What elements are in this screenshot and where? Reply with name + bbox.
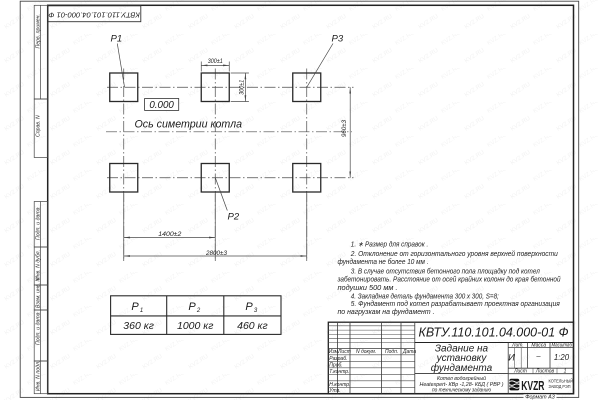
svg-text:Ось симетрии котла: Ось симетрии котла: [135, 119, 243, 131]
svg-text:N докум.: N докум.: [356, 349, 376, 355]
svg-text:2800±3: 2800±3: [205, 250, 227, 257]
svg-text:3. В случае отсутствия бетонн: 3. В случае отсутствия бетонного пола пл…: [351, 267, 540, 275]
svg-text:Лит.: Лит.: [511, 343, 524, 349]
svg-text:Подп. и дата: Подп. и дата: [35, 312, 41, 345]
svg-text:Подп. и дата: Подп. и дата: [35, 207, 41, 240]
svg-text:Проб.: Проб.: [329, 362, 342, 368]
svg-text:1000 кг: 1000 кг: [177, 320, 213, 332]
svg-text:2. Отклонение от горизонтальн: 2. Отклонение от горизонтального уровня …: [350, 250, 558, 258]
svg-text:0.000: 0.000: [149, 100, 174, 111]
svg-text:P2: P2: [228, 212, 240, 223]
svg-text:фундамента не более 10 мм .: фундамента не более 10 мм .: [338, 258, 429, 266]
svg-text:по техническому заданию: по техническому заданию: [432, 387, 491, 393]
svg-text:подушки 500 мм .: подушки 500 мм .: [338, 284, 398, 292]
svg-text:300±1: 300±1: [239, 79, 246, 94]
svg-text:Лист: Лист: [513, 369, 527, 375]
svg-text:Подп.: Подп.: [385, 349, 398, 355]
svg-text:460 кг: 460 кг: [237, 320, 268, 332]
svg-text:Инв. N подл.: Инв. N подл.: [35, 361, 41, 391]
svg-text:Листов: Листов: [535, 369, 555, 375]
svg-text:Формат А3: Формат А3: [525, 395, 555, 400]
svg-text:KVZR: KVZR: [521, 378, 544, 393]
svg-text:по нагрузкам на фундамент .: по нагрузкам на фундамент .: [338, 308, 435, 316]
svg-text:Справ. N: Справ. N: [35, 115, 41, 137]
svg-text:КВТУ.110.101.04.000-01 Ф: КВТУ.110.101.04.000-01 Ф: [49, 10, 140, 19]
svg-text:P3: P3: [332, 34, 344, 45]
svg-text:Утв.: Утв.: [329, 388, 340, 394]
svg-text:Н.контр.: Н.контр.: [329, 382, 350, 388]
svg-text:Перв. примен.: Перв. примен.: [35, 14, 41, 48]
svg-text:забетонировать. Расстояние от: забетонировать. Расстояние от осей крайн…: [337, 276, 561, 284]
svg-text:Масштаб: Масштаб: [551, 343, 572, 349]
svg-text:Взам. инв. N: Взам. инв. N: [35, 278, 41, 308]
svg-text:Дата: Дата: [402, 349, 416, 355]
svg-text:Разраб.: Разраб.: [329, 356, 347, 362]
svg-text:–: –: [535, 351, 541, 360]
svg-text:1:20: 1:20: [554, 353, 570, 362]
svg-text:P: P: [131, 301, 139, 313]
svg-text:Лист: Лист: [337, 349, 351, 355]
svg-text:И: И: [508, 352, 515, 362]
svg-text:ЗАВОД РЭП: ЗАВОД РЭП: [549, 384, 571, 390]
svg-text:360 кг: 360 кг: [123, 320, 154, 332]
svg-text:P: P: [188, 301, 196, 313]
svg-text:Инв. N дубл.: Инв. N дубл.: [35, 250, 41, 280]
svg-text:1. ∗ Размер для справок .: 1. ∗ Размер для справок .: [351, 241, 429, 249]
svg-text:КВТУ.110.101.04.000-01 Ф: КВТУ.110.101.04.000-01 Ф: [419, 325, 569, 339]
svg-text:P1: P1: [111, 34, 123, 45]
svg-text:300±1: 300±1: [208, 58, 223, 65]
svg-text:фундамента: фундамента: [431, 362, 493, 374]
svg-text:Масса: Масса: [531, 343, 546, 349]
svg-text:960±3: 960±3: [341, 120, 348, 137]
svg-text:5. Фундамент под котел разраб: 5. Фундамент под котел разрабатывает про…: [351, 300, 560, 308]
svg-text:1: 1: [140, 308, 143, 314]
svg-text:Т.контр.: Т.контр.: [329, 369, 349, 375]
svg-text:1: 1: [564, 369, 567, 375]
svg-text:P: P: [245, 301, 253, 313]
svg-text:2: 2: [196, 308, 201, 314]
svg-text:1400±2: 1400±2: [158, 231, 181, 238]
